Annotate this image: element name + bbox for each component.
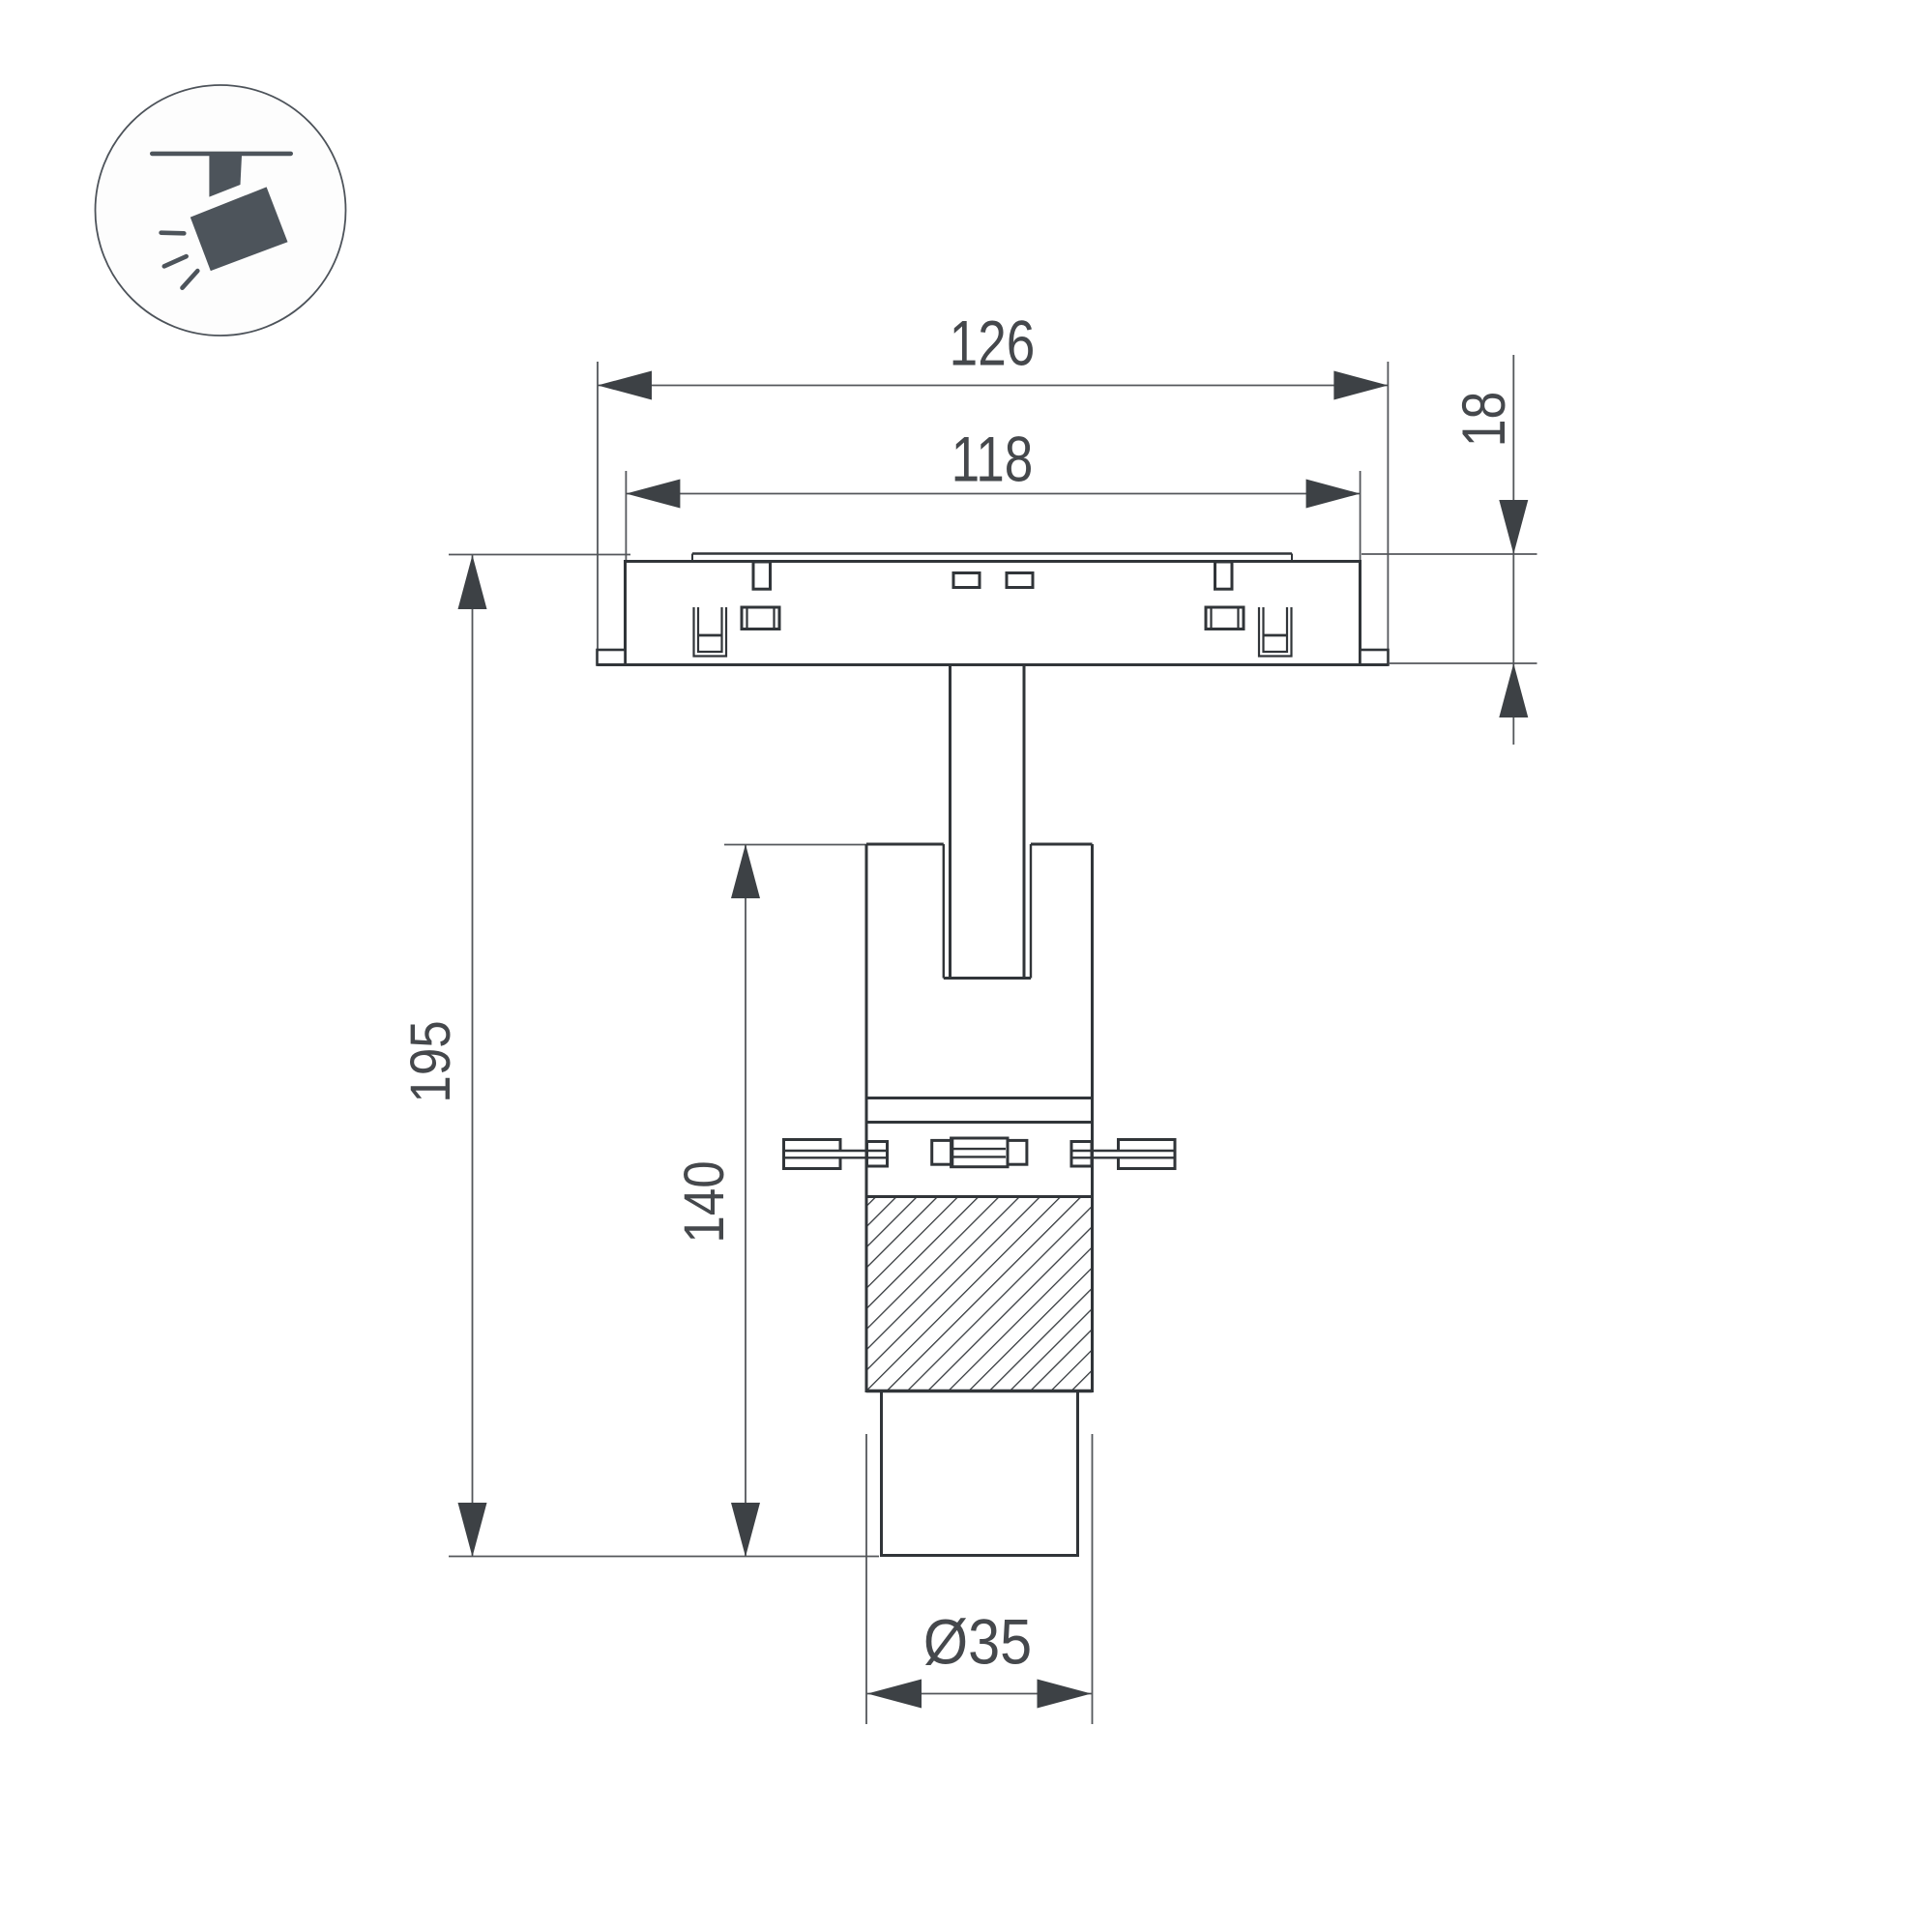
svg-text:140: 140: [673, 1160, 736, 1243]
svg-text:18: 18: [1450, 392, 1518, 447]
svg-text:195: 195: [399, 1020, 462, 1102]
svg-text:Ø35: Ø35: [923, 1607, 1032, 1679]
svg-text:126: 126: [950, 307, 1036, 379]
svg-text:118: 118: [951, 424, 1034, 495]
